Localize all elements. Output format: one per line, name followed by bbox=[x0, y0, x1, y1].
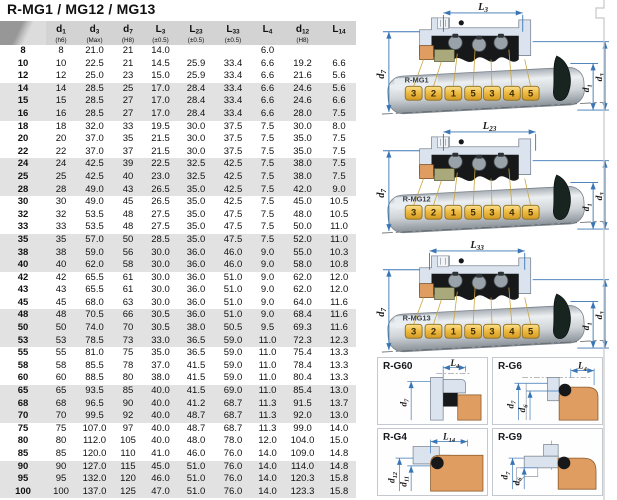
table-cell: 15.0 bbox=[322, 435, 356, 448]
table-cell: 11.0 bbox=[252, 360, 283, 373]
table-row: 181832.03319.530.037.57.530.08.0 bbox=[0, 121, 356, 134]
table-cell: 27 bbox=[113, 95, 143, 108]
table-cell: 68.7 bbox=[214, 410, 252, 423]
table-cell: 13.0 bbox=[322, 410, 356, 423]
table-cell: 10.8 bbox=[322, 259, 356, 272]
part-number: 3 bbox=[411, 207, 416, 218]
table-cell: 58 bbox=[0, 360, 46, 373]
table-cell: 12 bbox=[46, 70, 76, 83]
table-cell: 74.0 bbox=[76, 322, 113, 335]
column-header: d3(Max) bbox=[76, 21, 113, 45]
table-cell: 32 bbox=[0, 209, 46, 222]
table-cell: 42.5 bbox=[214, 184, 252, 197]
table-cell: 38.0 bbox=[178, 322, 214, 335]
table-cell: 7.5 bbox=[322, 171, 356, 184]
table-cell: 28.0 bbox=[283, 108, 322, 121]
table-cell: 17.0 bbox=[143, 108, 178, 121]
table-cell: 88.5 bbox=[76, 372, 113, 385]
table-cell: 47.5 bbox=[214, 221, 252, 234]
table-cell: 95 bbox=[46, 473, 76, 486]
table-cell: 40 bbox=[46, 259, 76, 272]
table-cell: 8.0 bbox=[322, 121, 356, 134]
part-number: 5 bbox=[528, 326, 533, 337]
table-cell: 7.5 bbox=[252, 221, 283, 234]
table-cell: 107.0 bbox=[76, 423, 113, 436]
part-number: 3 bbox=[489, 207, 494, 218]
table-cell: 47.5 bbox=[214, 209, 252, 222]
table-cell: 18 bbox=[0, 121, 46, 134]
table-cell: 28.4 bbox=[178, 95, 214, 108]
table-row: 161628.52717.028.433.46.628.07.5 bbox=[0, 108, 356, 121]
table-row: 252542.54023.032.542.57.538.07.5 bbox=[0, 171, 356, 184]
table-cell: 56 bbox=[113, 247, 143, 260]
table-cell: 24.6 bbox=[283, 83, 322, 96]
column-header: d7(H8) bbox=[113, 21, 143, 45]
table-row: 383859.05630.036.046.09.055.010.3 bbox=[0, 247, 356, 260]
table-cell: 35.0 bbox=[143, 347, 178, 360]
table-cell: 42.5 bbox=[76, 158, 113, 171]
table-cell: 45 bbox=[113, 196, 143, 209]
table-header: d1(h6)d3(Max)d7(H8)L3(±0.5)L23(±0.5)L33(… bbox=[0, 21, 356, 45]
table-cell: 80 bbox=[0, 435, 46, 448]
table-cell: 33 bbox=[46, 221, 76, 234]
table-cell: 16 bbox=[0, 108, 46, 121]
table-row: 454568.06330.036.051.09.064.011.6 bbox=[0, 297, 356, 310]
table-cell: 40.0 bbox=[143, 410, 178, 423]
table-cell: 49.0 bbox=[76, 184, 113, 197]
table-cell: 48 bbox=[46, 309, 76, 322]
table-cell: 30.0 bbox=[143, 297, 178, 310]
table-cell: 42.5 bbox=[76, 171, 113, 184]
table-cell: 33.4 bbox=[214, 58, 252, 71]
table-cell: 13.3 bbox=[322, 372, 356, 385]
table-cell: 14.8 bbox=[322, 461, 356, 474]
table-cell: 66 bbox=[113, 309, 143, 322]
table-cell: 35.0 bbox=[283, 146, 322, 159]
table-cell: 14.0 bbox=[252, 448, 283, 461]
table-cell: 76.0 bbox=[214, 461, 252, 474]
table-cell: 39 bbox=[113, 158, 143, 171]
table-row: 555581.07535.036.559.011.075.413.3 bbox=[0, 347, 356, 360]
table-cell: 7.5 bbox=[252, 196, 283, 209]
table-cell: 33.4 bbox=[214, 70, 252, 83]
table-cell: 45 bbox=[46, 297, 76, 310]
table-cell: 62.0 bbox=[283, 284, 322, 297]
seal-cross-section: 3215345R-MG1L3d7d1d3 bbox=[372, 2, 612, 119]
table-cell: 59.0 bbox=[214, 360, 252, 373]
table-cell: 33.0 bbox=[143, 335, 178, 348]
table-cell: 6.6 bbox=[322, 95, 356, 108]
table-cell: 26.5 bbox=[143, 196, 178, 209]
table-cell: 52.0 bbox=[283, 234, 322, 247]
table-row: 8821.02114.06.0 bbox=[0, 45, 356, 58]
part-number: 3 bbox=[489, 88, 494, 99]
table-cell: 70.5 bbox=[76, 309, 113, 322]
dimension-label: d7 bbox=[398, 398, 410, 407]
table-row: 100100137.012547.051.076.014.0123.315.8 bbox=[0, 486, 356, 499]
table-cell: 40.0 bbox=[143, 435, 178, 448]
table-row: 535378.57333.036.559.011.072.312.3 bbox=[0, 335, 356, 348]
table-cell: 11.0 bbox=[322, 221, 356, 234]
table-cell: 50.0 bbox=[283, 221, 322, 234]
table-cell: 13.7 bbox=[322, 398, 356, 411]
table-cell: 21.5 bbox=[143, 133, 178, 146]
seal-cross-section: 3215345R-MG13L33d7d1d3 bbox=[372, 240, 612, 357]
table-cell: 21 bbox=[113, 45, 143, 58]
table-cell: 28 bbox=[0, 184, 46, 197]
table-row: 101022.52114.525.933.46.619.26.6 bbox=[0, 58, 356, 71]
table-cell: 40.0 bbox=[143, 423, 178, 436]
table-cell: 30.0 bbox=[143, 272, 178, 285]
part-number: 3 bbox=[489, 326, 494, 337]
table-cell: 41.5 bbox=[178, 385, 214, 398]
table-cell: 22 bbox=[0, 146, 46, 159]
table-cell: 38 bbox=[46, 247, 76, 260]
dimension-label: L33 bbox=[469, 240, 484, 252]
table-cell: 28.5 bbox=[76, 108, 113, 121]
table-cell: 18 bbox=[46, 121, 76, 134]
table-cell: 68.7 bbox=[214, 423, 252, 436]
table-cell: 28.4 bbox=[178, 83, 214, 96]
table-row: 323253.54827.535.047.57.548.010.5 bbox=[0, 209, 356, 222]
table-cell: 7.5 bbox=[322, 108, 356, 121]
table-cell: 30.0 bbox=[283, 121, 322, 134]
table-cell: 15 bbox=[46, 95, 76, 108]
table-cell: 7.5 bbox=[252, 234, 283, 247]
table-cell: 14.0 bbox=[252, 486, 283, 499]
table-cell: 11.0 bbox=[252, 347, 283, 360]
table-cell: 70 bbox=[0, 410, 46, 423]
table-cell: 12.0 bbox=[322, 284, 356, 297]
table-cell: 68 bbox=[46, 398, 76, 411]
table-cell: 75.4 bbox=[283, 347, 322, 360]
dimension-label: d7 bbox=[506, 400, 518, 409]
table-row: 8585120.011041.046.076.014.0109.014.8 bbox=[0, 448, 356, 461]
table-row: 434365.56130.036.051.09.062.012.0 bbox=[0, 284, 356, 297]
table-cell: 59.0 bbox=[76, 247, 113, 260]
table-cell: 11.3 bbox=[252, 398, 283, 411]
table-cell: 76.0 bbox=[214, 486, 252, 499]
table-row: 333353.54827.535.047.57.550.011.0 bbox=[0, 221, 356, 234]
column-header: L4 bbox=[252, 21, 283, 45]
table-cell: 14.0 bbox=[252, 461, 283, 474]
part-number: 5 bbox=[471, 207, 476, 218]
table-cell: 26.5 bbox=[143, 184, 178, 197]
table-cell: 51.0 bbox=[214, 272, 252, 285]
table-cell: 41.0 bbox=[143, 448, 178, 461]
table-cell: 7.5 bbox=[252, 133, 283, 146]
table-cell: 38.0 bbox=[143, 372, 178, 385]
table-cell: 49.0 bbox=[76, 196, 113, 209]
dimension-label: d11 bbox=[398, 476, 410, 487]
table-cell: 48 bbox=[0, 309, 46, 322]
part-number: 2 bbox=[431, 88, 436, 99]
table-cell: 7.5 bbox=[322, 158, 356, 171]
table-row: 303049.04526.535.042.57.545.010.5 bbox=[0, 196, 356, 209]
table-cell: 35.0 bbox=[178, 209, 214, 222]
table-cell: 32.5 bbox=[178, 158, 214, 171]
table-cell: 10 bbox=[0, 58, 46, 71]
table-cell: 14.8 bbox=[322, 448, 356, 461]
table-cell: 14 bbox=[0, 83, 46, 96]
table-cell: 59.0 bbox=[214, 347, 252, 360]
table-cell: 33 bbox=[0, 221, 46, 234]
table-cell: 36.0 bbox=[178, 272, 214, 285]
table-cell: 41.5 bbox=[178, 372, 214, 385]
table-cell: 28 bbox=[46, 184, 76, 197]
table-cell: 12.0 bbox=[322, 272, 356, 285]
dimension-label: d6 bbox=[511, 477, 523, 486]
table-cell: 16 bbox=[46, 108, 76, 121]
part-number: 1 bbox=[451, 88, 456, 99]
table-cell: 68.0 bbox=[76, 297, 113, 310]
table-cell: 7.5 bbox=[252, 121, 283, 134]
seat-panel-r-g4: R-G4 L14d12d11 bbox=[377, 428, 488, 496]
table-cell: 19.2 bbox=[283, 58, 322, 71]
table-cell: 7.5 bbox=[322, 133, 356, 146]
table-cell: 68 bbox=[0, 398, 46, 411]
dimension-label: d7 bbox=[376, 308, 388, 317]
table-cell: 14.5 bbox=[143, 58, 178, 71]
part-number: 2 bbox=[431, 207, 436, 218]
table-cell: 12.3 bbox=[322, 335, 356, 348]
table-cell: 9.0 bbox=[252, 272, 283, 285]
table-cell: 78.5 bbox=[76, 335, 113, 348]
table-cell: 36.0 bbox=[178, 284, 214, 297]
seal-diagram-r-mg13: 3215345R-MG13L33d7d1d3 bbox=[372, 240, 612, 357]
table-row: 8080112.010540.048.078.012.0104.015.0 bbox=[0, 435, 356, 448]
table-cell: 50 bbox=[113, 234, 143, 247]
table-cell: 42.5 bbox=[214, 171, 252, 184]
table-cell: 24.6 bbox=[283, 95, 322, 108]
table-cell: 10 bbox=[46, 58, 76, 71]
table-cell: 25.0 bbox=[76, 70, 113, 83]
table-cell: 53 bbox=[0, 335, 46, 348]
table-cell: 35.0 bbox=[178, 234, 214, 247]
table-cell: 114.0 bbox=[283, 461, 322, 474]
seal-model-label: R-MG1 bbox=[405, 75, 429, 84]
table-cell: 65 bbox=[0, 385, 46, 398]
table-cell: 65 bbox=[46, 385, 76, 398]
table-cell: 48 bbox=[113, 209, 143, 222]
table-cell: 60 bbox=[46, 372, 76, 385]
dimension-label: L4 bbox=[449, 358, 460, 370]
table-cell: 58 bbox=[46, 360, 76, 373]
table-cell: 30.5 bbox=[143, 309, 178, 322]
table-cell: 85 bbox=[46, 448, 76, 461]
seat-panel-r-g60: R-G60 L4d7 bbox=[377, 357, 488, 425]
table-cell: 115 bbox=[113, 461, 143, 474]
column-header bbox=[0, 21, 46, 45]
table-cell: 120 bbox=[113, 473, 143, 486]
table-cell: 30.0 bbox=[143, 259, 178, 272]
table-cell: 75 bbox=[0, 423, 46, 436]
part-number: 5 bbox=[528, 88, 533, 99]
table-cell: 51.0 bbox=[178, 473, 214, 486]
table-cell: 61 bbox=[113, 284, 143, 297]
table-cell: 55 bbox=[0, 347, 46, 360]
table-cell: 28.5 bbox=[76, 95, 113, 108]
table-cell: 14 bbox=[46, 83, 76, 96]
column-header: L14 bbox=[322, 21, 356, 45]
table-cell: 78 bbox=[113, 360, 143, 373]
table-cell: 58.0 bbox=[283, 259, 322, 272]
table-cell: 51.0 bbox=[178, 486, 214, 499]
table-cell: 48.7 bbox=[178, 410, 214, 423]
table-row: 7575107.09740.048.768.711.399.014.0 bbox=[0, 423, 356, 436]
table-cell: 76.0 bbox=[214, 473, 252, 486]
table-cell: 23.0 bbox=[143, 171, 178, 184]
table-cell: 38.0 bbox=[283, 171, 322, 184]
table-cell: 53.5 bbox=[76, 209, 113, 222]
table-cell: 11.0 bbox=[322, 234, 356, 247]
table-cell: 6.6 bbox=[252, 58, 283, 71]
table-cell: 15.8 bbox=[322, 486, 356, 499]
table-cell: 35.0 bbox=[178, 221, 214, 234]
table-cell: 40 bbox=[0, 259, 46, 272]
table-cell: 19.5 bbox=[143, 121, 178, 134]
table-cell: 21 bbox=[113, 58, 143, 71]
table-cell: 7.5 bbox=[252, 171, 283, 184]
dimension-label: d12 bbox=[387, 471, 399, 483]
table-cell: 55.0 bbox=[283, 247, 322, 260]
table-cell: 73 bbox=[113, 335, 143, 348]
table-cell: 7.5 bbox=[252, 209, 283, 222]
table-cell: 21.6 bbox=[283, 70, 322, 83]
dimension-label: d7 bbox=[376, 70, 388, 79]
table-cell: 21.0 bbox=[76, 45, 113, 58]
table-cell: 17.0 bbox=[143, 83, 178, 96]
table-cell: 48 bbox=[113, 221, 143, 234]
table-cell: 10.5 bbox=[322, 196, 356, 209]
part-number: 5 bbox=[471, 88, 476, 99]
table-cell: 62.0 bbox=[283, 272, 322, 285]
table-cell: 33.4 bbox=[214, 83, 252, 96]
table-cell: 7.5 bbox=[252, 158, 283, 171]
table-cell: 45.0 bbox=[283, 196, 322, 209]
table-cell: 15 bbox=[0, 95, 46, 108]
table-cell: 37.0 bbox=[143, 360, 178, 373]
table-cell: 36.0 bbox=[178, 247, 214, 260]
table-cell: 36.0 bbox=[178, 259, 214, 272]
column-header: L3(±0.5) bbox=[143, 21, 178, 45]
table-cell: 9.0 bbox=[252, 284, 283, 297]
table-cell: 93.5 bbox=[76, 385, 113, 398]
table-cell: 42.5 bbox=[214, 158, 252, 171]
table-cell: 62.0 bbox=[76, 259, 113, 272]
table-cell: 55 bbox=[46, 347, 76, 360]
table-cell: 85 bbox=[113, 385, 143, 398]
dimension-label: d6 bbox=[517, 404, 529, 413]
seat-panel-r-g9: R-G9 d7d6 bbox=[492, 428, 603, 496]
table-cell: 75 bbox=[46, 423, 76, 436]
table-cell: 40 bbox=[113, 171, 143, 184]
dimension-label: L14 bbox=[442, 432, 456, 444]
table-cell: 65.5 bbox=[76, 284, 113, 297]
table-cell: 100 bbox=[46, 486, 76, 499]
table-cell: 6.0 bbox=[252, 45, 283, 58]
table-cell: 6.6 bbox=[252, 83, 283, 96]
table-cell: 46.0 bbox=[143, 473, 178, 486]
table-cell: 50 bbox=[46, 322, 76, 335]
table-cell: 58 bbox=[113, 259, 143, 272]
table-cell: 15.0 bbox=[143, 70, 178, 83]
table-cell: 9.0 bbox=[252, 297, 283, 310]
table-cell: 11.0 bbox=[252, 335, 283, 348]
table-cell: 36.5 bbox=[178, 347, 214, 360]
size-table-body: 8821.02114.06.0101022.52114.525.933.46.6… bbox=[0, 45, 356, 498]
table-cell: 8 bbox=[46, 45, 76, 58]
part-number: 3 bbox=[411, 326, 416, 337]
table-cell: 92 bbox=[113, 410, 143, 423]
table-cell: 36.0 bbox=[178, 297, 214, 310]
table-cell: 11.3 bbox=[252, 410, 283, 423]
table-cell: 25 bbox=[0, 171, 46, 184]
table-cell: 120.3 bbox=[283, 473, 322, 486]
table-cell: 10.3 bbox=[322, 247, 356, 260]
table-cell: 48.0 bbox=[178, 435, 214, 448]
table-cell: 21.5 bbox=[143, 146, 178, 159]
seal-diagram-r-mg12: 3215345R-MG12L23d7d1d3 bbox=[372, 121, 612, 238]
table-cell: 14.0 bbox=[322, 423, 356, 436]
table-cell: 42 bbox=[46, 272, 76, 285]
table-cell: 109.0 bbox=[283, 448, 322, 461]
table-cell: 112.0 bbox=[76, 435, 113, 448]
table-row: 404062.05830.036.046.09.058.010.8 bbox=[0, 259, 356, 272]
table-cell: 5.6 bbox=[322, 83, 356, 96]
table-cell: 13.3 bbox=[322, 347, 356, 360]
table-cell: 28.4 bbox=[178, 108, 214, 121]
table-cell: 30.0 bbox=[143, 284, 178, 297]
table-cell: 43 bbox=[113, 184, 143, 197]
table-cell: 7.5 bbox=[252, 146, 283, 159]
seal-cross-section: 3215345R-MG12L23d7d1d3 bbox=[372, 121, 612, 238]
table-cell: 27.5 bbox=[143, 221, 178, 234]
table-cell bbox=[322, 45, 356, 58]
seat-panel-title: R-G9 bbox=[498, 432, 522, 443]
seal-model-label: R-MG13 bbox=[403, 313, 431, 322]
table-cell: 48.0 bbox=[283, 209, 322, 222]
part-number: 4 bbox=[509, 207, 515, 218]
table-cell: 68.4 bbox=[283, 309, 322, 322]
table-cell: 30.0 bbox=[178, 146, 214, 159]
table-cell: 41.2 bbox=[178, 398, 214, 411]
table-row: 585885.57837.041.559.011.078.413.3 bbox=[0, 360, 356, 373]
table-cell: 90 bbox=[113, 398, 143, 411]
table-cell: 20 bbox=[46, 133, 76, 146]
table-cell: 9.0 bbox=[322, 184, 356, 197]
table-cell: 32.0 bbox=[76, 121, 113, 134]
page-title: R-MG1 / MG12 / MG13 bbox=[7, 1, 156, 17]
table-row: 353557.05028.535.047.57.552.011.0 bbox=[0, 234, 356, 247]
table-cell: 70 bbox=[46, 410, 76, 423]
table-cell: 11.6 bbox=[322, 297, 356, 310]
table-cell: 53.5 bbox=[76, 221, 113, 234]
table-cell: 127.0 bbox=[76, 461, 113, 474]
dimension-label: d7 bbox=[376, 189, 388, 198]
table-cell: 105 bbox=[113, 435, 143, 448]
dimension-label: L3 bbox=[477, 2, 488, 14]
table-cell: 8 bbox=[0, 45, 46, 58]
table-cell: 47.0 bbox=[143, 486, 178, 499]
part-number: 1 bbox=[451, 207, 456, 218]
table-cell: 37.0 bbox=[76, 133, 113, 146]
table-cell: 43 bbox=[0, 284, 46, 297]
table-cell: 12.0 bbox=[252, 435, 283, 448]
table-cell: 6.6 bbox=[252, 70, 283, 83]
table-cell: 59.0 bbox=[214, 335, 252, 348]
table-cell: 46.0 bbox=[214, 247, 252, 260]
